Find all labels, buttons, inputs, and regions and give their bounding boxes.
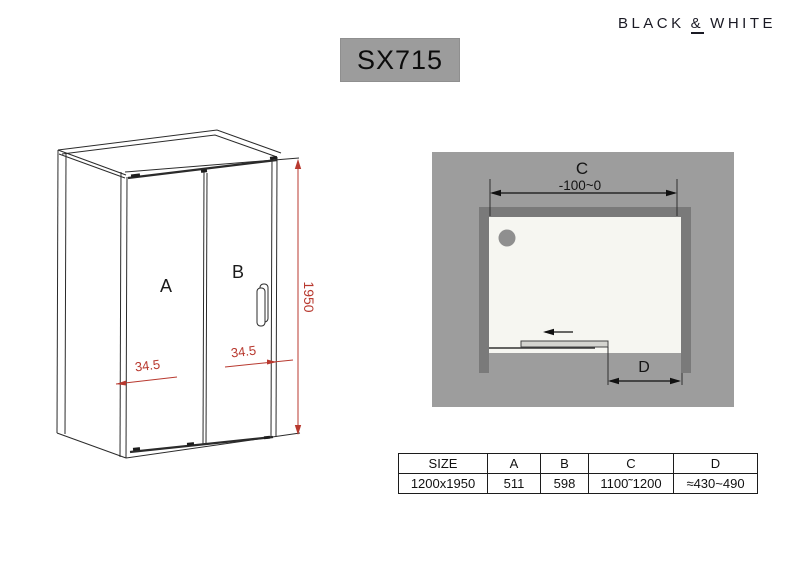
spec-table-value-row: 1200x1950 511 598 1100˜1200 ≈430~490: [399, 474, 758, 494]
wall-top: [479, 207, 691, 217]
col-header-size: SIZE: [399, 454, 488, 474]
c-dim-range: -100~0: [559, 178, 601, 193]
model-badge: SX715: [340, 38, 460, 82]
drain-icon: [499, 230, 516, 247]
brand-logo: BLACK&WHITE: [618, 15, 776, 34]
panel-b-label: B: [232, 262, 244, 282]
wall-left: [479, 207, 489, 373]
spec-table-header-row: SIZE A B C D: [399, 454, 758, 474]
brand-word-black: BLACK: [618, 15, 685, 32]
value-d: ≈430~490: [674, 474, 758, 494]
top-view-diagram: C -100~0 D: [432, 152, 734, 407]
right-offset-dimension: 34.5: [225, 343, 293, 367]
c-dim-label: C: [576, 159, 588, 178]
left-offset-label: 34.5: [134, 357, 161, 375]
col-header-b: B: [541, 454, 589, 474]
panel-a-label: A: [160, 276, 172, 296]
value-size: 1200x1950: [399, 474, 488, 494]
height-dimension: 1950: [295, 159, 317, 435]
shower-tray: [489, 217, 681, 353]
spec-table: SIZE A B C D 1200x1950 511 598 1100˜1200…: [398, 453, 758, 494]
spec-sheet-page: BLACK&WHITE SX715: [0, 0, 800, 565]
value-a: 511: [488, 474, 541, 494]
col-header-d: D: [674, 454, 758, 474]
d-dim-label: D: [638, 359, 650, 376]
col-header-c: C: [589, 454, 674, 474]
wall-right: [681, 207, 691, 373]
value-c: 1100˜1200: [589, 474, 674, 494]
col-header-a: A: [488, 454, 541, 474]
sliding-panel-bar: [521, 341, 608, 347]
value-b: 598: [541, 474, 589, 494]
model-label: SX715: [357, 45, 443, 76]
brand-word-white: WHITE: [710, 15, 776, 32]
height-dim-label: 1950: [301, 281, 317, 312]
right-offset-label: 34.5: [230, 343, 257, 361]
left-offset-dimension: 34.5: [116, 357, 177, 386]
door-handle: [257, 284, 268, 326]
brand-ampersand: &: [691, 16, 705, 34]
front-elevation-drawing: A B 1950 34.5 34.5: [40, 118, 320, 480]
